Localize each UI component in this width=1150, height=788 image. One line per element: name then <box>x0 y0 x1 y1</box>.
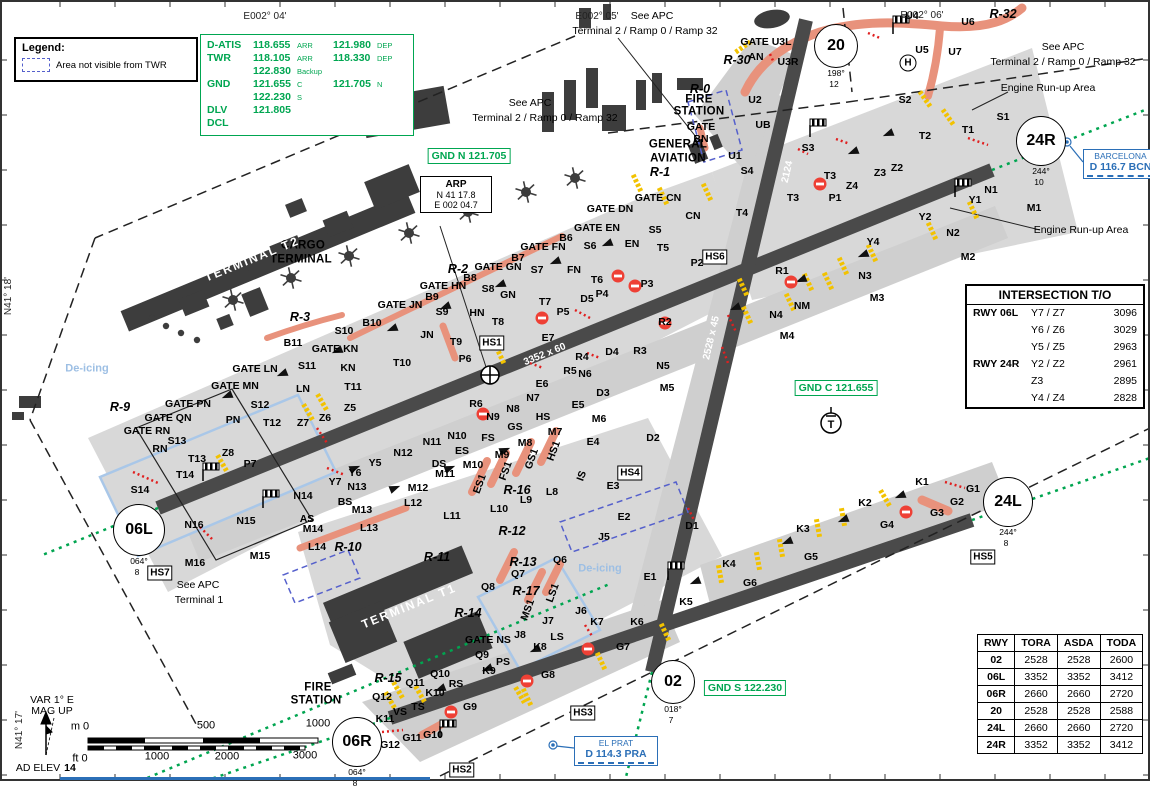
map-label-n15: N15 <box>236 516 255 527</box>
map-label-r4: R4 <box>575 352 588 363</box>
map-label-gate-cn: GATE CN <box>635 193 681 204</box>
intersection-rwy <box>973 390 1031 407</box>
map-label-3000: 3000 <box>293 751 317 762</box>
freq-label: D-ATIS <box>207 39 253 51</box>
intersection-row: RWY 24RY2 / Z22961 <box>967 356 1143 373</box>
vor-morse-barcelona <box>1087 175 1150 177</box>
map-label-n8: N8 <box>506 404 519 415</box>
runway-elev-24l: 8 <box>1004 539 1009 548</box>
runway-heading-06l: 064° <box>130 557 148 566</box>
runway-end-20: 20 <box>814 24 858 68</box>
runway-end-06r: 06R <box>332 717 382 767</box>
map-label-2000: 2000 <box>215 752 239 763</box>
intersection-dist: 2963 <box>1093 339 1137 356</box>
map-label-g3: G3 <box>930 508 944 519</box>
map-label-b11: B11 <box>284 338 303 349</box>
map-label-n11: N11 <box>423 437 442 448</box>
map-label-n6: N6 <box>578 369 591 380</box>
map-label-t5: T5 <box>657 243 669 254</box>
map-label-t12: T12 <box>263 418 281 429</box>
map-label-see-apc: See APC <box>1042 42 1085 53</box>
map-label-see-apc: See APC <box>631 11 674 22</box>
distances-value: 2660 <box>1057 686 1100 703</box>
map-label-m1: M1 <box>1027 203 1042 214</box>
distances-value: 2660 <box>1057 720 1100 737</box>
map-label-1000: 1000 <box>145 752 169 763</box>
map-label-e6: E6 <box>536 379 549 390</box>
map-label-b9: B9 <box>425 292 438 303</box>
map-label-cn: CN <box>685 211 700 222</box>
map-label-see-apc: See APC <box>509 98 552 109</box>
map-label-l10: L10 <box>490 504 508 515</box>
map-label-k4: K4 <box>722 559 735 570</box>
map-label-t3: T3 <box>787 193 799 204</box>
map-label-gate-pn: GATE PN <box>165 399 211 410</box>
map-label-m14: M14 <box>303 524 323 535</box>
map-label-n41-17: N41° 17' <box>15 711 25 749</box>
map-label-3352-x-60: 3352 x 60 <box>522 342 567 368</box>
intersection-takeoff-table: INTERSECTION T/O RWY 06LY7 / Z73096Y6 / … <box>965 284 1145 409</box>
map-label-layer: Legend: Area not visible from TWR D-ATIS… <box>0 0 1150 781</box>
map-label-r-17: R-17 <box>512 585 539 598</box>
intersection-row: Y4 / Z42828 <box>967 390 1143 407</box>
runway-elev-20: 12 <box>829 80 838 89</box>
map-label-j8: J8 <box>514 630 526 641</box>
map-label-y1: Y1 <box>969 195 982 206</box>
map-label-m3: M3 <box>870 293 885 304</box>
vor-ident-el-prat: D 114.3 PRA <box>578 748 654 760</box>
map-label-fs1: FS1 <box>498 460 514 482</box>
map-label-y5: Y5 <box>369 458 382 469</box>
freq-suffix: ARR <box>297 41 333 50</box>
map-label-500: 500 <box>197 721 215 732</box>
map-label-d2: D2 <box>646 433 659 444</box>
map-label-es: ES <box>455 446 469 457</box>
distances-value: 3412 <box>1100 737 1143 754</box>
map-label-r-1: R-1 <box>650 166 670 179</box>
distances-rwy: 06R <box>978 686 1015 703</box>
intersection-dist: 2961 <box>1093 356 1137 373</box>
map-label-g6: G6 <box>743 578 757 589</box>
runway-elev-24r: 10 <box>1034 178 1043 187</box>
map-label-gn: GN <box>500 290 516 301</box>
freq-value: 118.655 <box>253 39 297 51</box>
intersection-dist: 2828 <box>1093 390 1137 407</box>
map-label-u5: U5 <box>915 45 928 56</box>
vor-ident-barcelona: D 116.7 BCN <box>1087 161 1150 173</box>
freq-value: 121.705 <box>333 78 377 90</box>
map-label-b10: B10 <box>362 318 381 329</box>
map-label-terminal-2-ramp-0-ramp-32: Terminal 2 / Ramp 0 / Ramp 32 <box>572 26 717 37</box>
map-label-h: H <box>900 55 917 72</box>
intersection-dist: 3029 <box>1093 322 1137 339</box>
map-label-b8: B8 <box>463 273 476 284</box>
freq-value: 121.655 <box>253 78 297 90</box>
map-label-engine-run-up-area: Engine Run-up Area <box>1001 83 1096 94</box>
map-label-l8: L8 <box>546 487 558 498</box>
map-label-t4: T4 <box>736 208 748 219</box>
arp-title: ARP <box>422 179 490 190</box>
freq-suffix: DEP <box>377 54 413 63</box>
map-label-g8: G8 <box>541 670 555 681</box>
freq-row-dcl: DCL <box>207 117 407 130</box>
intersection-row: Y5 / Z52963 <box>967 339 1143 356</box>
map-label-gate-qn: GATE QN <box>144 413 191 424</box>
freq-row-gnd: GND121.655C121.705N <box>207 78 407 91</box>
runway-elev-06l: 8 <box>135 568 140 577</box>
map-label-rs: RS <box>449 679 464 690</box>
freq-value: 118.105 <box>253 52 297 64</box>
freq-row-4: 122.230S <box>207 91 407 104</box>
map-label-gate-mn: GATE MN <box>211 381 259 392</box>
map-label-s3: S3 <box>802 143 815 154</box>
distances-value: 2660 <box>1015 686 1058 703</box>
map-label-hs: HS <box>536 412 551 423</box>
map-label-t2: T2 <box>919 131 931 142</box>
distances-row-02: 02252825282600 <box>978 652 1143 669</box>
map-label-e5: E5 <box>572 400 585 411</box>
map-label-s12: S12 <box>251 400 270 411</box>
map-label-terminal-2-ramp-0-ramp-32: Terminal 2 / Ramp 0 / Ramp 32 <box>990 57 1135 68</box>
map-label-2528-x-45: 2528 x 45 <box>702 315 722 361</box>
map-label-d5: D5 <box>580 294 593 305</box>
freq-suffix: S <box>297 93 333 102</box>
map-label-n7: N7 <box>526 393 539 404</box>
map-label-l11: L11 <box>443 511 461 522</box>
map-label-fire: FIRE <box>685 94 712 106</box>
runway-heading-20: 198° <box>827 69 845 78</box>
map-label-1000: 1000 <box>306 719 330 730</box>
map-label-q12: Q12 <box>372 692 392 703</box>
map-label-m2: M2 <box>961 252 976 263</box>
intersection-dist: 3096 <box>1093 305 1137 322</box>
hotspot-hs5: HS5 <box>970 550 995 565</box>
distances-rwy: 02 <box>978 652 1015 669</box>
map-label-gate-en: GATE EN <box>574 223 620 234</box>
intersection-twy: Y4 / Z4 <box>1031 390 1093 407</box>
intersection-twy: Y6 / Z6 <box>1031 322 1093 339</box>
map-label-q7: Q7 <box>511 569 525 580</box>
map-label-hs1: HS1 <box>546 440 563 463</box>
map-label-m9: M9 <box>495 450 510 461</box>
map-label-s8: S8 <box>482 284 495 295</box>
map-label-gate: GATE <box>687 122 715 133</box>
map-label-e1: E1 <box>644 572 657 583</box>
map-label-an: AN <box>748 52 763 63</box>
map-label-gate-rn: GATE RN <box>124 426 170 437</box>
gnd-box-gnd-c-121-655: GND C 121.655 <box>795 380 878 396</box>
map-label-q11: Q11 <box>405 678 424 689</box>
map-label-s11: S11 <box>298 361 316 372</box>
map-label-z2: Z2 <box>891 163 903 174</box>
map-label-m13: M13 <box>352 505 372 516</box>
map-label-de-icing: De-icing <box>65 364 108 375</box>
runway-heading-24l: 244° <box>999 528 1017 537</box>
intersection-rwy: RWY 06L <box>973 305 1031 322</box>
distances-row-06r: 06R266026602720 <box>978 686 1143 703</box>
map-label-d4: D4 <box>605 347 618 358</box>
map-label-n3: N3 <box>858 271 871 282</box>
legend-item-label: Area not visible from TWR <box>56 60 167 71</box>
runway-elev-06r: 8 <box>353 779 358 788</box>
map-label-n16: N16 <box>184 520 203 531</box>
intersection-table-title: INTERSECTION T/O <box>967 286 1143 305</box>
vor-morse-el-prat <box>578 762 654 764</box>
map-label-ad-elev: AD ELEV <box>16 763 60 774</box>
map-label-j5: J5 <box>598 532 610 543</box>
map-label-r-11: R-11 <box>424 551 450 564</box>
map-label-q6: Q6 <box>553 555 567 566</box>
map-label-u4: U4 <box>905 11 918 22</box>
freq-row-dlv: DLV121.805 <box>207 104 407 117</box>
map-label-p1: P1 <box>829 193 842 204</box>
map-label-p3: P3 <box>641 279 654 290</box>
map-label-l13: L13 <box>360 523 378 534</box>
map-label-r1: R1 <box>775 266 788 277</box>
map-label-t10: T10 <box>393 358 411 369</box>
freq-value: 122.230 <box>253 91 297 103</box>
map-label-g4: G4 <box>880 520 894 531</box>
hotspot-hs2: HS2 <box>449 763 474 778</box>
map-label-kn: KN <box>340 363 355 374</box>
map-label-s1: S1 <box>997 112 1010 123</box>
runway-end-24l: 24L <box>983 477 1033 527</box>
map-label-k9: K9 <box>482 666 495 677</box>
map-label-b6: B6 <box>559 233 572 244</box>
vor-box-el-prat: EL PRATD 114.3 PRA <box>574 736 658 766</box>
map-label-g2: G2 <box>950 497 964 508</box>
map-label-as: AS <box>300 514 315 525</box>
map-label-2124: 2124 <box>781 160 796 184</box>
distances-value: 2660 <box>1015 720 1058 737</box>
freq-row-twr: TWR118.105ARR118.330DEP <box>207 52 407 65</box>
map-label-s2: S2 <box>899 95 912 106</box>
map-label-r3: R3 <box>633 346 646 357</box>
map-label-en: EN <box>625 239 640 250</box>
distances-rwy: 24L <box>978 720 1015 737</box>
map-label-bn: BN <box>693 134 708 145</box>
map-label-k7: K7 <box>590 617 603 628</box>
arp-box: ARP N 41 17.8 E 002 04.7 <box>420 176 492 213</box>
map-label-ts: TS <box>411 702 424 713</box>
intersection-twy: Z3 <box>1031 373 1093 390</box>
map-label-m7: M7 <box>548 427 563 438</box>
map-label-r-32: R-32 <box>989 8 1016 21</box>
hotspot-hs6: HS6 <box>702 250 727 265</box>
map-label-s14: S14 <box>131 485 150 496</box>
map-label-station: STATION <box>674 106 725 118</box>
map-label-z6: Z6 <box>319 413 331 424</box>
distances-value: 3352 <box>1057 669 1100 686</box>
map-label-rn: RN <box>152 444 167 455</box>
distances-rwy: 24R <box>978 737 1015 754</box>
map-label-gate-hn: GATE HN <box>420 281 466 292</box>
map-label-ub: UB <box>755 120 770 131</box>
map-label-t9: T9 <box>450 337 462 348</box>
map-label-fs: FS <box>481 433 494 444</box>
distances-value: 2528 <box>1057 703 1100 720</box>
map-label-b7: B7 <box>511 253 524 264</box>
distances-value: 3412 <box>1100 669 1143 686</box>
map-label-g10: G10 <box>423 730 443 741</box>
intersection-row: Z32895 <box>967 373 1143 390</box>
map-label-m11: M11 <box>435 469 455 480</box>
distances-value: 3352 <box>1057 737 1100 754</box>
runway-end-24r: 24R <box>1016 116 1066 166</box>
map-label-n14: N14 <box>293 491 312 502</box>
distances-row-20: 20252825282588 <box>978 703 1143 720</box>
gnd-box-gnd-n-121-705: GND N 121.705 <box>428 148 511 164</box>
map-label-r-3: R-3 <box>290 311 310 324</box>
map-label-ds: DS <box>432 459 447 470</box>
map-label-r6: R6 <box>469 399 482 410</box>
legend-box: Legend: Area not visible from TWR <box>14 37 198 82</box>
map-label-n12: N12 <box>393 448 412 459</box>
map-label-de-icing: De-icing <box>578 564 621 575</box>
map-label-e3: E3 <box>607 481 620 492</box>
map-label-gate-ns: GATE NS <box>465 635 511 646</box>
freq-value: 118.330 <box>333 52 377 64</box>
map-label-s4: S4 <box>741 166 754 177</box>
map-label-14: 14 <box>64 763 76 774</box>
map-label-q10: Q10 <box>430 669 450 680</box>
map-label-j7: J7 <box>542 616 554 627</box>
airport-diagram: T Legend: Area not visible from TWR D-AT… <box>0 0 1150 781</box>
map-label-s9: S9 <box>436 307 449 318</box>
map-label-z8: Z8 <box>222 448 234 459</box>
map-label-q8: Q8 <box>481 582 495 593</box>
map-label-m4: M4 <box>780 331 795 342</box>
map-label-is: IS <box>575 470 588 483</box>
map-label-n9: N9 <box>486 412 499 423</box>
map-label-n4: N4 <box>769 310 782 321</box>
map-label-gs: GS <box>507 422 522 433</box>
map-label-z7: Z7 <box>297 418 309 429</box>
map-label-e4: E4 <box>587 437 600 448</box>
map-label-gs1: GS1 <box>523 447 540 470</box>
map-label-u3r: U3R <box>777 57 798 68</box>
freq-value: 121.805 <box>253 104 297 116</box>
map-label-ln: LN <box>296 384 310 395</box>
map-label-s6: S6 <box>584 241 597 252</box>
not-visible-swatch-icon <box>22 58 50 72</box>
intersection-rwy <box>973 373 1031 390</box>
intersection-row: Y6 / Z63029 <box>967 322 1143 339</box>
map-label-e002-04: E002° 04' <box>243 12 286 22</box>
map-label-var-1-e: VAR 1° E <box>30 695 74 706</box>
map-label-r-30: R-30 <box>723 54 750 67</box>
intersection-rwy <box>973 339 1031 356</box>
declared-distances-table: RWYTORAASDATODA 0225282528260006L3352335… <box>977 634 1143 754</box>
map-label-l12: L12 <box>404 498 422 509</box>
map-label-p4: P4 <box>596 289 609 300</box>
intersection-rwy <box>973 322 1031 339</box>
frequency-box: D-ATIS118.655ARR121.980DEPTWR118.105ARR1… <box>200 34 414 136</box>
map-label-r-10: R-10 <box>334 541 361 554</box>
map-label-n13: N13 <box>347 482 366 493</box>
freq-suffix: N <box>377 80 413 89</box>
runway-end-02: 02 <box>651 660 695 704</box>
map-label-r-14: R-14 <box>454 607 481 620</box>
map-label-e002-05: E002° 05' <box>575 12 618 22</box>
distances-row-24r: 24R335233523412 <box>978 737 1143 754</box>
map-label-l14: L14 <box>308 542 326 553</box>
map-label-gate-dn: GATE DN <box>587 204 633 215</box>
distances-header-tora: TORA <box>1015 635 1058 652</box>
runway-heading-24r: 244° <box>1032 167 1050 176</box>
distances-rwy: 06L <box>978 669 1015 686</box>
vor-name-el-prat: EL PRAT <box>578 738 654 748</box>
map-label-gate-jn: GATE JN <box>378 300 423 311</box>
map-label-g7: G7 <box>616 642 630 653</box>
distances-header-rwy: RWY <box>978 635 1015 652</box>
map-label-u2: U2 <box>748 95 761 106</box>
map-label-n10: N10 <box>447 431 466 442</box>
distances-value: 2720 <box>1100 686 1143 703</box>
map-label-t6: T6 <box>591 275 603 286</box>
map-label-r-9: R-9 <box>110 401 130 414</box>
distances-value: 2528 <box>1057 652 1100 669</box>
freq-label: GND <box>207 78 253 90</box>
map-label-p7: P7 <box>244 459 257 470</box>
arp-lon: E 002 04.7 <box>422 200 490 210</box>
hotspot-hs1: HS1 <box>479 336 504 351</box>
map-label-s5: S5 <box>649 225 662 236</box>
map-label-k1: K1 <box>915 477 928 488</box>
map-label-y7: Y7 <box>329 477 342 488</box>
freq-suffix: DEP <box>377 41 413 50</box>
map-label-t1: T1 <box>962 125 974 136</box>
map-label-g5: G5 <box>804 552 818 563</box>
map-label-t3: T3 <box>824 171 836 182</box>
map-label-e2: E2 <box>618 512 631 523</box>
map-label-terminal-2-ramp-0-ramp-32: Terminal 2 / Ramp 0 / Ramp 32 <box>472 113 617 124</box>
map-label-hn: HN <box>469 308 484 319</box>
map-label-nm: NM <box>794 301 810 312</box>
map-label-y4: Y4 <box>867 237 880 248</box>
map-label-terminal-1: Terminal 1 <box>175 595 223 606</box>
map-label-r-0: R-0 <box>690 83 710 96</box>
map-label-m16: M16 <box>185 558 205 569</box>
map-label-q9: Q9 <box>475 650 489 661</box>
map-label-u7: U7 <box>948 47 961 58</box>
vor-box-barcelona: BARCELONAD 116.7 BCN <box>1083 149 1150 179</box>
map-label-fn: FN <box>567 265 581 276</box>
map-label-k6: K6 <box>630 617 643 628</box>
legend-title: Legend: <box>22 42 190 54</box>
map-label-s7: S7 <box>531 265 544 276</box>
runway-end-06l: 06L <box>113 504 165 556</box>
map-label-engine-run-up-area: Engine Run-up Area <box>1034 225 1129 236</box>
freq-value: 122.830 <box>253 65 297 77</box>
map-label-m-0: m 0 <box>71 722 89 733</box>
gnd-box-gnd-s-122-230: GND S 122.230 <box>704 680 786 696</box>
freq-value: 121.980 <box>333 39 377 51</box>
map-label-k5: K5 <box>679 597 692 608</box>
map-label-u1: U1 <box>728 151 741 162</box>
map-label-y6: Y6 <box>349 468 362 479</box>
map-label-n5: N5 <box>656 361 669 372</box>
freq-row-2: 122.830Backup <box>207 65 407 78</box>
distances-value: 2600 <box>1100 652 1143 669</box>
map-label-jn: JN <box>420 330 433 341</box>
distances-rwy: 20 <box>978 703 1015 720</box>
map-label-pn: PN <box>226 415 241 426</box>
map-label-t11: T11 <box>344 382 362 393</box>
arp-lat: N 41 17.8 <box>422 190 490 200</box>
map-label-mag-up: MAG UP <box>31 706 72 717</box>
map-label-g9: G9 <box>463 702 477 713</box>
